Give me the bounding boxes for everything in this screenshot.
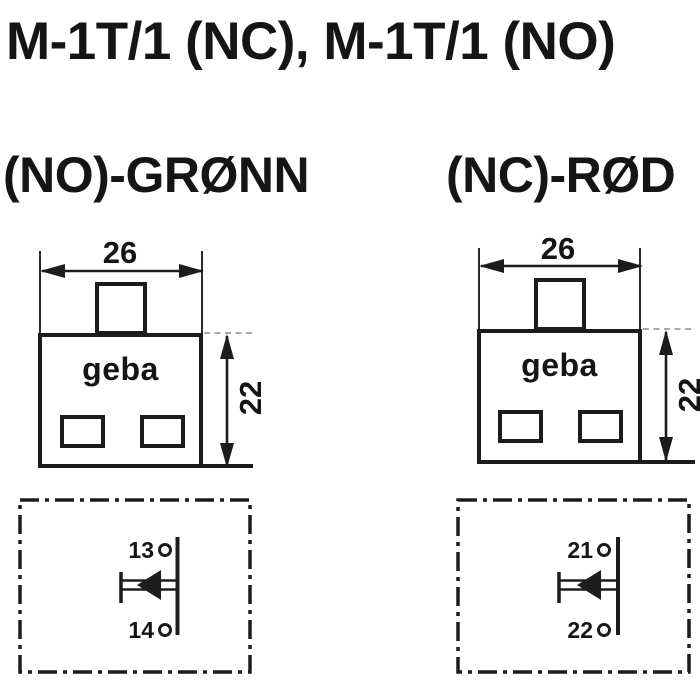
actuator-arrowhead-icon bbox=[137, 570, 161, 600]
page-title: M-1T/1 (NC), M-1T/1 (NO) bbox=[6, 15, 615, 68]
actuator-arrowhead-icon bbox=[577, 570, 601, 600]
arrowhead-right-icon bbox=[179, 264, 204, 278]
nc-device-button bbox=[534, 278, 586, 331]
nc-terminal-number-bottom: 22 bbox=[557, 619, 593, 642]
no-device-height-dim-label: 22 bbox=[235, 380, 265, 416]
variant-label-nc-rod: (NC)-RØD bbox=[446, 150, 675, 200]
nc-device-terminal-slot-left bbox=[498, 410, 543, 443]
nc-device-terminal-slot-right bbox=[578, 410, 623, 443]
dash-dot-outline bbox=[458, 500, 689, 672]
arrowhead-down-icon bbox=[220, 443, 234, 468]
arrowhead-right-icon bbox=[618, 259, 643, 273]
nc-terminal-number-top: 21 bbox=[557, 539, 593, 562]
nc-device-brand-text: geba bbox=[477, 349, 642, 381]
no-device-brand-text: geba bbox=[38, 353, 203, 385]
terminal-circle-top bbox=[160, 545, 171, 556]
dash-dot-outline bbox=[20, 500, 250, 672]
arrowhead-up-icon bbox=[659, 330, 673, 355]
terminal-circle-bottom bbox=[160, 625, 171, 636]
no-terminal-number-bottom: 14 bbox=[118, 619, 154, 642]
no-device-terminal-slot-left bbox=[60, 415, 105, 448]
no-contact-diagram bbox=[16, 495, 256, 677]
nc-device-height-dim-label: 22 bbox=[674, 377, 700, 413]
arrowhead-down-icon bbox=[659, 437, 673, 462]
diagram-canvas: M-1T/1 (NC), M-1T/1 (NO) (NO)-GRØNN (NC)… bbox=[0, 0, 700, 700]
terminal-circle-bottom bbox=[599, 625, 610, 636]
arrowhead-up-icon bbox=[220, 334, 234, 359]
arrowhead-left-icon bbox=[479, 259, 504, 273]
variant-label-no-gronn: (NO)-GRØNN bbox=[3, 150, 309, 200]
no-device-terminal-slot-right bbox=[140, 415, 185, 448]
nc-contact-diagram bbox=[455, 495, 695, 677]
no-terminal-number-top: 13 bbox=[118, 539, 154, 562]
no-device-button bbox=[95, 282, 147, 335]
terminal-circle-top bbox=[599, 545, 610, 556]
arrowhead-left-icon bbox=[40, 264, 65, 278]
